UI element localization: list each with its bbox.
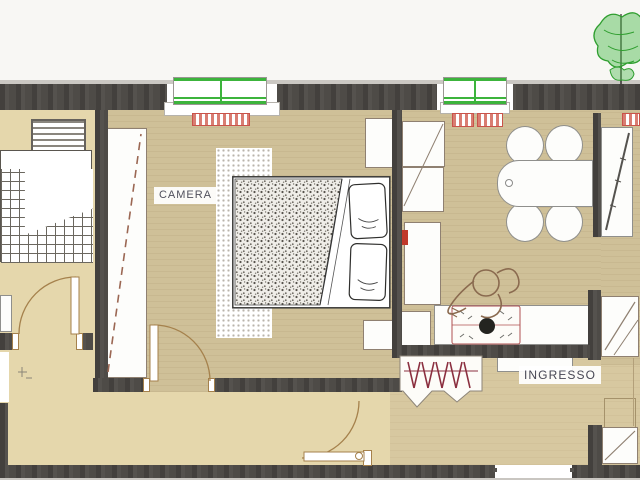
closet-diagonal: [605, 302, 635, 350]
closet-diagonal: [614, 320, 638, 355]
table-knob: [506, 180, 513, 187]
wardrobe-right-diagonal: [606, 133, 629, 230]
plan-vector-overlay: [0, 0, 640, 480]
tree-icon: [594, 13, 640, 82]
coat-rack: [400, 356, 482, 407]
door-arc-left-room: [19, 277, 76, 334]
pillow: [349, 183, 388, 239]
sink-drain: [479, 318, 495, 334]
pillow: [349, 243, 387, 300]
double-bed: [233, 177, 390, 308]
person-head: [473, 270, 499, 296]
kitchen-unit-diagonal: [404, 124, 443, 206]
door-arc-corridor: [302, 401, 359, 458]
level-marker: [18, 367, 32, 378]
tree-foliage-small: [610, 67, 634, 80]
tree-foliage: [594, 13, 640, 67]
room-label-ingresso: INGRESSO: [519, 366, 601, 384]
sink-unit: [452, 306, 520, 344]
floor-plan: CAMERA INGRESSO: [0, 0, 640, 480]
closet-diagonal: [605, 431, 635, 460]
door-arc-camera: [154, 325, 210, 381]
room-label-camera: CAMERA: [154, 187, 217, 204]
person-shoulder: [497, 269, 519, 293]
door-leaf-corridor: [304, 452, 364, 461]
door-leaf-left-room: [71, 277, 79, 334]
wardrobe-slide-line: [108, 134, 141, 372]
door-leaf-camera: [150, 325, 158, 381]
